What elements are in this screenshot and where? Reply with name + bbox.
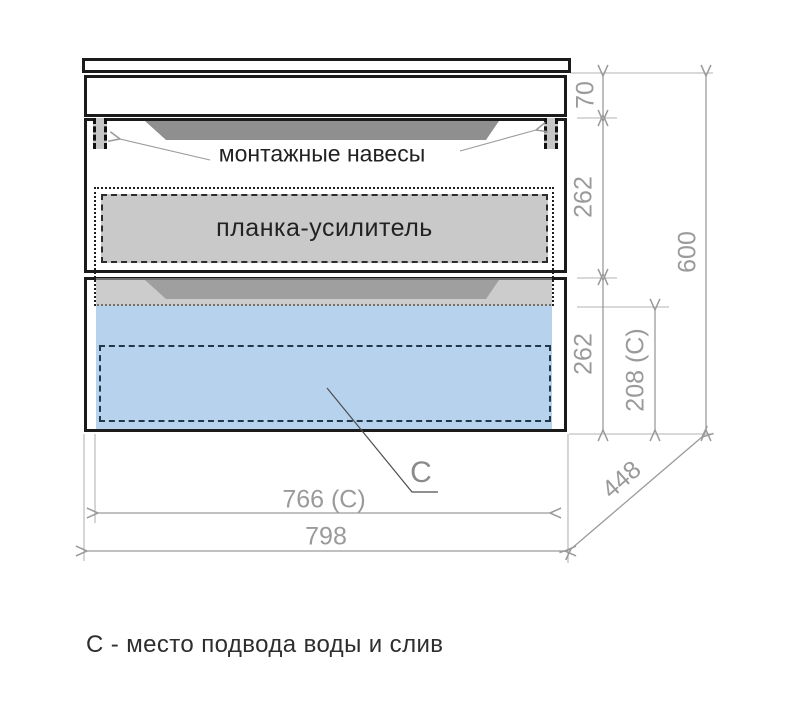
dim-text-766: 766 (C) [282, 486, 365, 515]
vanity-technical-drawing: планка-усилитель [0, 0, 800, 713]
dim-line-448 [571, 437, 702, 549]
dim-text-208: 208 (C) [622, 328, 651, 411]
mounting-hangers-label: монтажные навесы [219, 141, 425, 168]
dim-text-600: 600 [674, 231, 703, 273]
dim-text-70: 70 [572, 81, 601, 109]
dimension-linework [0, 0, 800, 713]
dim-text-262-bottom: 262 [570, 333, 599, 375]
hanger-arrow-left [120, 139, 210, 160]
hanger-arrow-right [460, 130, 536, 151]
dim-text-262-top: 262 [570, 176, 599, 218]
legend-caption: С - место подвода воды и слив [86, 631, 443, 659]
connection-marker-label: C [410, 456, 432, 490]
dim-text-798: 798 [305, 523, 347, 552]
